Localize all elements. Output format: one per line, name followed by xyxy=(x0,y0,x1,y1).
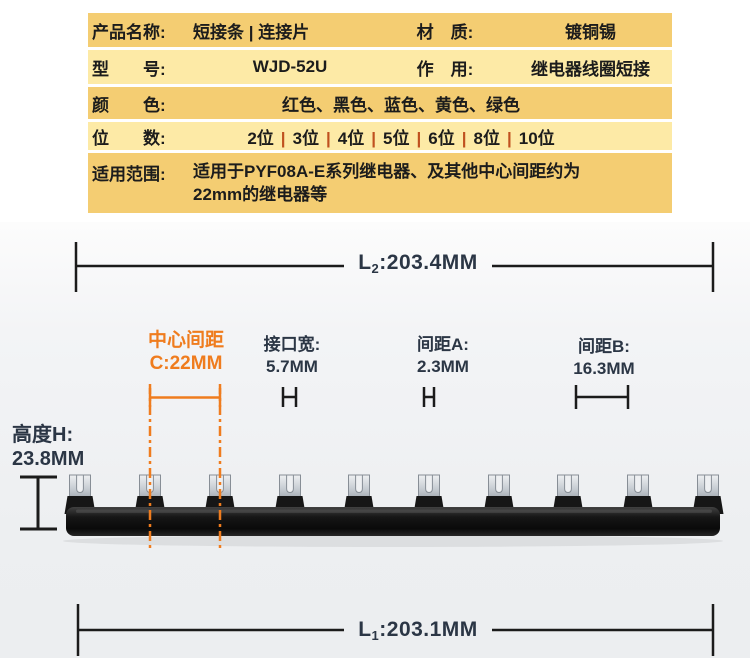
l1-prefix: L xyxy=(358,618,371,641)
height-h-value: 23.8MM xyxy=(12,447,84,471)
material-value: 镀铜锡 xyxy=(495,18,672,43)
l1-subscript: 1 xyxy=(372,628,380,643)
spec-table: 产品名称: 短接条 | 连接片 材 质: 镀铜锡 型 号: WJD-52U 作 … xyxy=(88,13,672,213)
product-name-value: 短接条 | 连接片 xyxy=(185,18,395,43)
product-spec-sheet: 产品名称: 短接条 | 连接片 材 质: 镀铜锡 型 号: WJD-52U 作 … xyxy=(0,0,750,658)
l2-prefix: L xyxy=(358,251,371,274)
table-row: 颜 色: 红色、黑色、蓝色、黄色、绿色 xyxy=(88,87,672,119)
table-row: 位 数: 2位|3位|4位|5位|6位|8位|10位 xyxy=(88,122,672,150)
gap-a-value: 2.3MM xyxy=(417,356,469,378)
interface-width-label: 接口宽: 5.7MM xyxy=(264,334,321,378)
table-row: 适用范围: 适用于PYF08A-E系列继电器、及其他中心间距约为 22mm的继电… xyxy=(88,153,672,213)
position-item: 8位 xyxy=(474,129,500,148)
material-label: 材 质: xyxy=(395,18,495,43)
scope-value: 适用于PYF08A-E系列继电器、及其他中心间距约为 22mm的继电器等 xyxy=(185,153,672,206)
height-h-label: 高度H: 23.8MM xyxy=(12,423,84,471)
center-spacing-label: 中心间距 C:22MM xyxy=(148,329,224,375)
scope-label: 适用范围: xyxy=(88,153,185,185)
l2-dimension-label: L2:203.4MM xyxy=(358,250,478,282)
center-spacing-value: C:22MM xyxy=(148,352,224,375)
position-item: 6位 xyxy=(428,129,454,148)
gap-a-title: 间距A: xyxy=(417,334,469,356)
table-row: 产品名称: 短接条 | 连接片 材 质: 镀铜锡 xyxy=(88,13,672,47)
position-item: 10位 xyxy=(519,129,555,148)
scope-line2: 22mm的继电器等 xyxy=(193,183,668,206)
gap-b-label: 间距B: 16.3MM xyxy=(573,336,634,380)
color-label: 颜 色: xyxy=(88,91,185,116)
scope-line1: 适用于PYF08A-E系列继电器、及其他中心间距约为 xyxy=(193,160,668,183)
l2-value: :203.4MM xyxy=(379,251,478,274)
gap-b-title: 间距B: xyxy=(573,336,634,358)
table-row: 型 号: WJD-52U 作 用: 继电器线圈短接 xyxy=(88,50,672,84)
product-name-label: 产品名称: xyxy=(88,18,185,43)
l1-dimension-label: L1:203.1MM xyxy=(358,617,478,649)
position-item: 3位 xyxy=(293,129,319,148)
position-item: 2位 xyxy=(247,129,273,148)
positions-label: 位 数: xyxy=(88,124,185,149)
model-label: 型 号: xyxy=(88,55,185,80)
position-separator: | xyxy=(455,129,474,148)
center-spacing-title: 中心间距 xyxy=(148,329,224,352)
color-value: 红色、黑色、蓝色、黄色、绿色 xyxy=(185,91,672,116)
l2-subscript: 2 xyxy=(372,261,380,276)
position-separator: | xyxy=(500,129,519,148)
position-separator: | xyxy=(364,129,383,148)
gap-a-label: 间距A: 2.3MM xyxy=(417,334,469,378)
photo-background xyxy=(0,222,750,658)
position-separator: | xyxy=(410,129,429,148)
position-separator: | xyxy=(319,129,338,148)
function-label: 作 用: xyxy=(395,55,495,80)
position-separator: | xyxy=(274,129,293,148)
interface-width-value: 5.7MM xyxy=(264,356,321,378)
l1-value: :203.1MM xyxy=(379,618,478,641)
model-value: WJD-52U xyxy=(185,57,395,77)
gap-b-value: 16.3MM xyxy=(573,358,634,380)
positions-value: 2位|3位|4位|5位|6位|8位|10位 xyxy=(185,124,672,149)
position-item: 5位 xyxy=(383,129,409,148)
position-item: 4位 xyxy=(338,129,364,148)
function-value: 继电器线圈短接 xyxy=(495,55,672,80)
height-h-title: 高度H: xyxy=(12,423,84,447)
interface-width-title: 接口宽: xyxy=(264,334,321,356)
